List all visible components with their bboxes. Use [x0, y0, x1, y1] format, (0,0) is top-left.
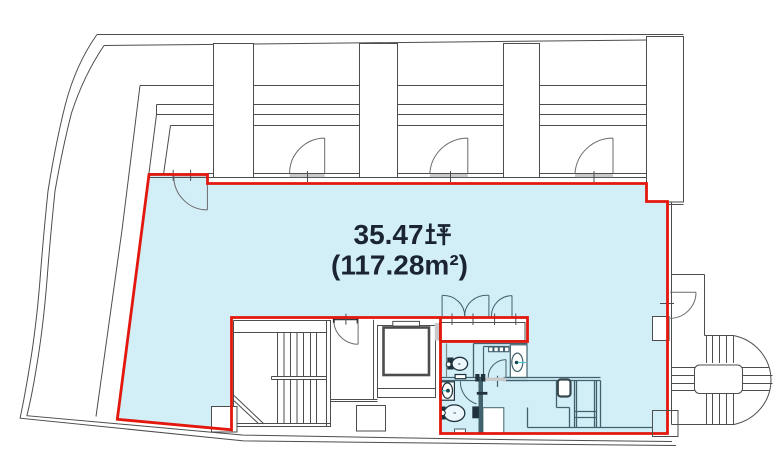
svg-text:(117.28m²): (117.28m²) — [331, 250, 468, 281]
svg-text:35.47: 35.47 — [354, 219, 424, 250]
